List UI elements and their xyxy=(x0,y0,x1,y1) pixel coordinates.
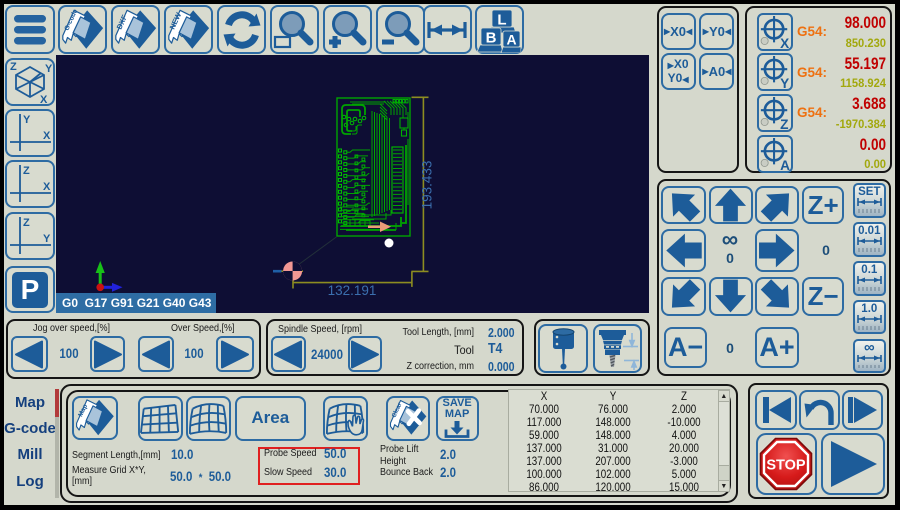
svg-text:Z: Z xyxy=(23,217,30,229)
svg-text:X: X xyxy=(43,181,51,193)
svg-text:193.433: 193.433 xyxy=(420,161,435,210)
svg-text:132.191: 132.191 xyxy=(328,283,377,298)
svg-text:X: X xyxy=(40,94,48,104)
svg-text:Y: Y xyxy=(23,114,31,126)
svg-text:Z: Z xyxy=(23,165,30,177)
svg-text:STOP: STOP xyxy=(767,457,807,473)
svg-text:A: A xyxy=(507,31,517,47)
svg-text:X: X xyxy=(43,130,51,142)
svg-text:Y: Y xyxy=(45,63,53,75)
svg-text:L: L xyxy=(498,11,507,28)
svg-text:B: B xyxy=(486,29,497,46)
svg-text:Y: Y xyxy=(43,233,51,245)
svg-text:Z: Z xyxy=(10,61,17,73)
